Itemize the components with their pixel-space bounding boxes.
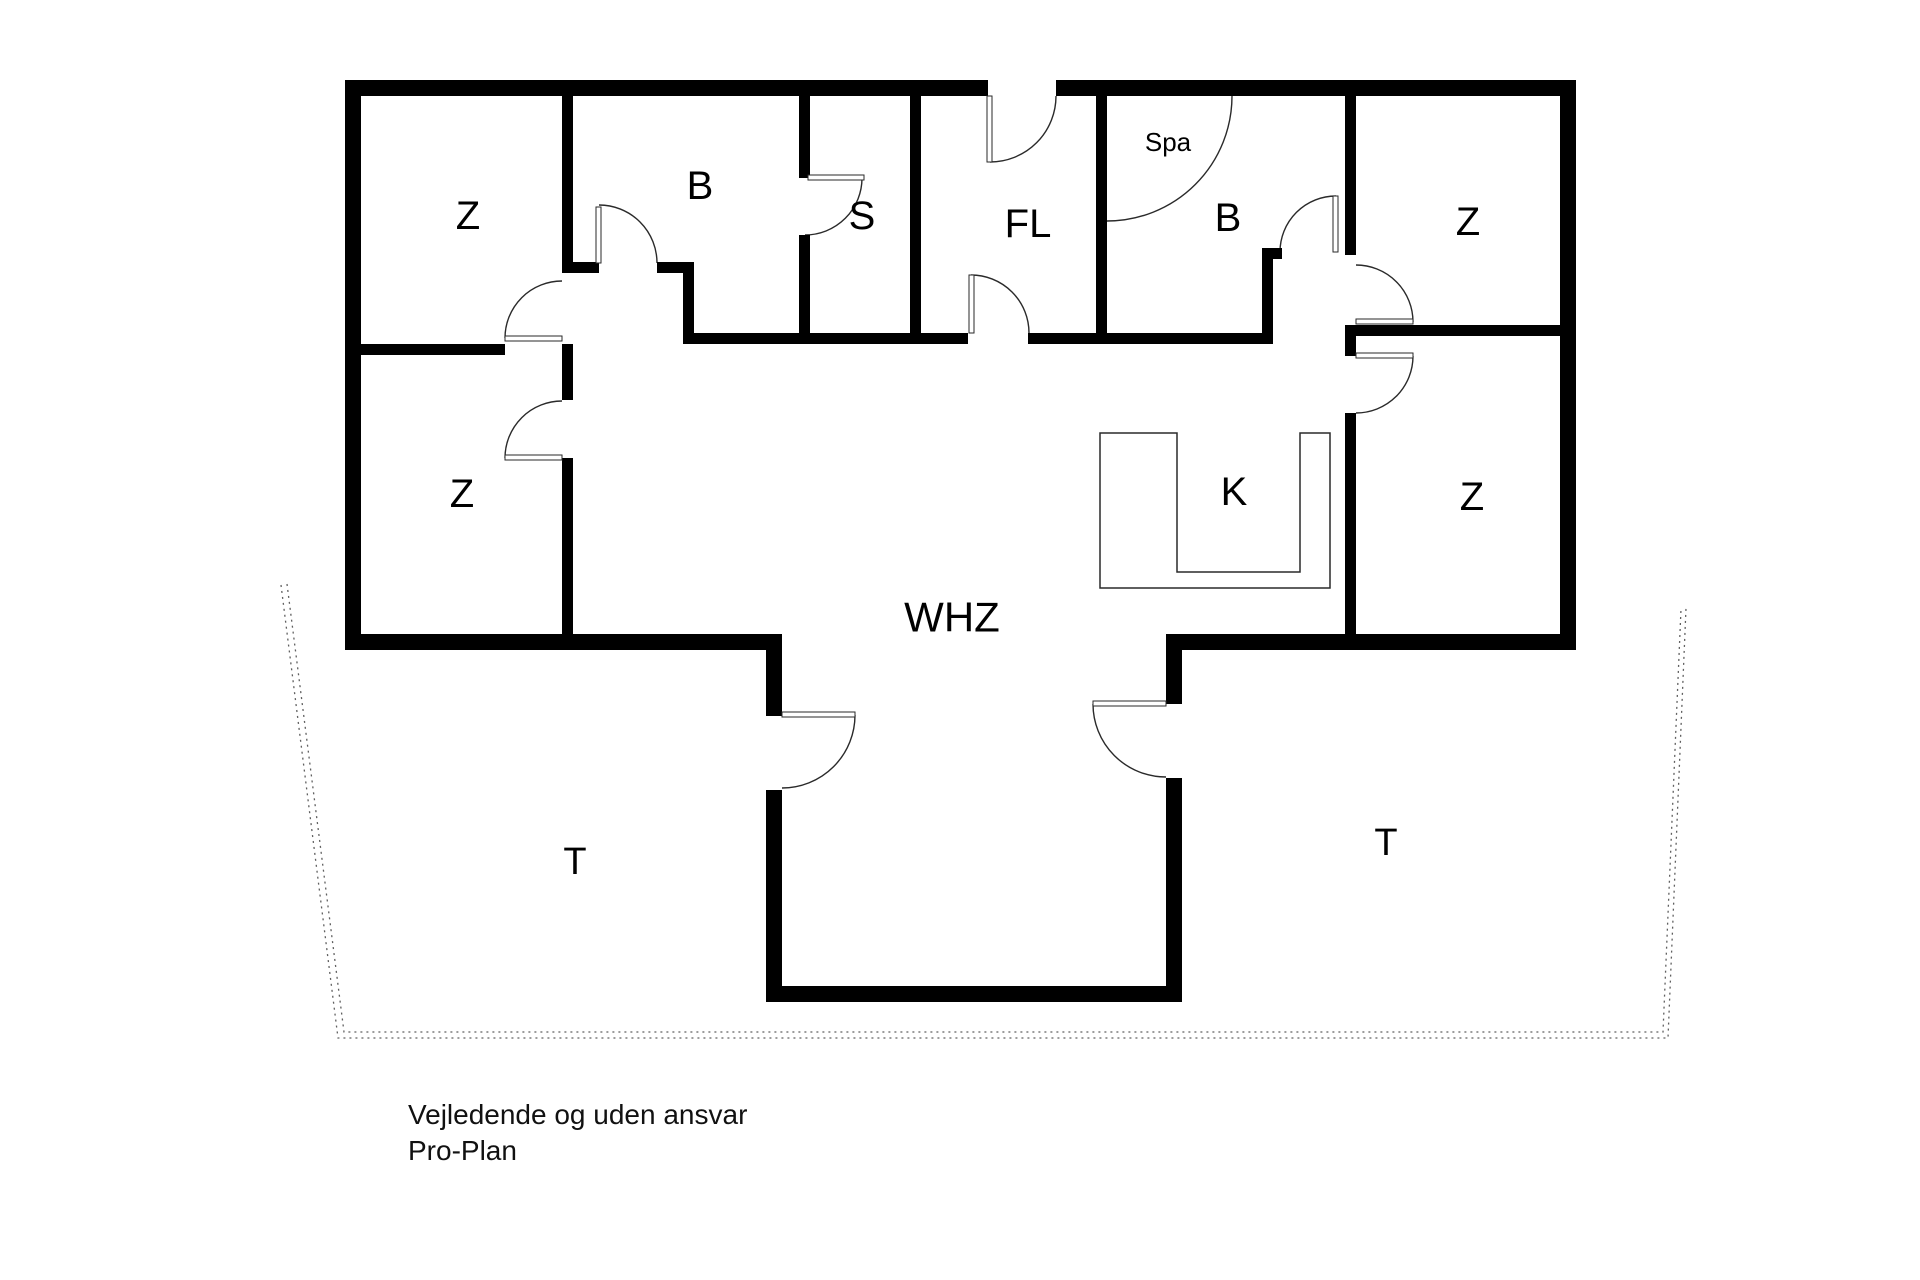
room-label-k-kitchen: K (1221, 470, 1248, 514)
door-leaf-sauna (808, 175, 864, 180)
exterior-wall-bottom-right (1166, 634, 1576, 650)
door-leaf-hallway (969, 275, 974, 333)
living-bay-wall-bottom (766, 986, 1182, 1002)
disclaimer-text: Vejledende og uden ansvar (408, 1098, 747, 1132)
exterior-wall-top-right (1056, 80, 1576, 96)
room-label-t-terrace-left: T (563, 841, 586, 883)
floorplan-page: ZBSFLSpaBZZKZWHZTT Vejledende og uden an… (0, 0, 1920, 1280)
living-bay-wall-right-upper (1166, 634, 1182, 704)
plan-author-text: Pro-Plan (408, 1134, 517, 1168)
wall-z1-b (562, 96, 573, 272)
wall-z1-z3-divider (361, 344, 505, 355)
room-label-b-spa-bath: B (1215, 196, 1242, 240)
wall-bspa-z2 (1345, 96, 1356, 255)
door-leaf-z-bottom-right (1356, 353, 1413, 358)
wall-s-fl (910, 96, 921, 344)
door-leaf-z-bottom-left (505, 455, 562, 460)
wall-fl-bottom-right (1028, 333, 1107, 344)
door-leaf-bath (596, 207, 601, 263)
exterior-wall-right (1560, 80, 1576, 650)
wall-z4-left (1345, 413, 1356, 650)
room-label-spa: Spa (1145, 127, 1192, 157)
floorplan-drawing: ZBSFLSpaBZZKZWHZTT (0, 0, 1920, 1280)
wall-b-s-lower (799, 235, 810, 344)
door-leaf-entry (987, 96, 992, 162)
wall-fl-bottom-left (921, 333, 968, 344)
wall-bspa-step (1262, 248, 1273, 344)
door-leaf-terrace-right (1093, 701, 1166, 706)
wall-z4-stub (1345, 336, 1356, 356)
wall-bspa-stub (1262, 248, 1282, 259)
door-leaf-spa-bath (1333, 196, 1338, 252)
living-bay-wall-right-lower (1166, 778, 1182, 1002)
exterior-wall-left (345, 80, 361, 650)
wall-b-step (683, 262, 694, 344)
room-label-z-bottom-left: Z (450, 472, 474, 516)
wall-fl-bspa (1096, 96, 1107, 344)
wall-z2-z4-divider (1345, 325, 1560, 336)
living-bay-wall-left-lower (766, 790, 782, 1002)
wall-z3-right-upper (562, 344, 573, 400)
room-label-z-top-right: Z (1456, 200, 1480, 244)
room-label-z-bottom-right: Z (1460, 475, 1484, 519)
wall-z3-right-lower (562, 458, 573, 650)
door-leaf-z-top-right (1356, 319, 1413, 324)
wall-bspa-bottom (1107, 333, 1273, 344)
wall-b-s-upper (799, 96, 810, 178)
room-label-fl-hallway: FL (1005, 202, 1052, 246)
room-label-z-top-left: Z (456, 194, 480, 238)
wall-b-bottom-left-stub (562, 262, 599, 273)
room-label-whz-living: WHZ (904, 594, 1000, 641)
living-bay-wall-left-upper (766, 634, 782, 716)
room-label-t-terrace-right: T (1374, 822, 1397, 864)
room-label-s-sauna: S (849, 194, 876, 238)
door-leaf-terrace-left (782, 712, 855, 717)
door-leaf-z-top-left (505, 336, 562, 341)
room-label-b-bath: B (687, 164, 714, 208)
exterior-wall-top-left (345, 80, 988, 96)
